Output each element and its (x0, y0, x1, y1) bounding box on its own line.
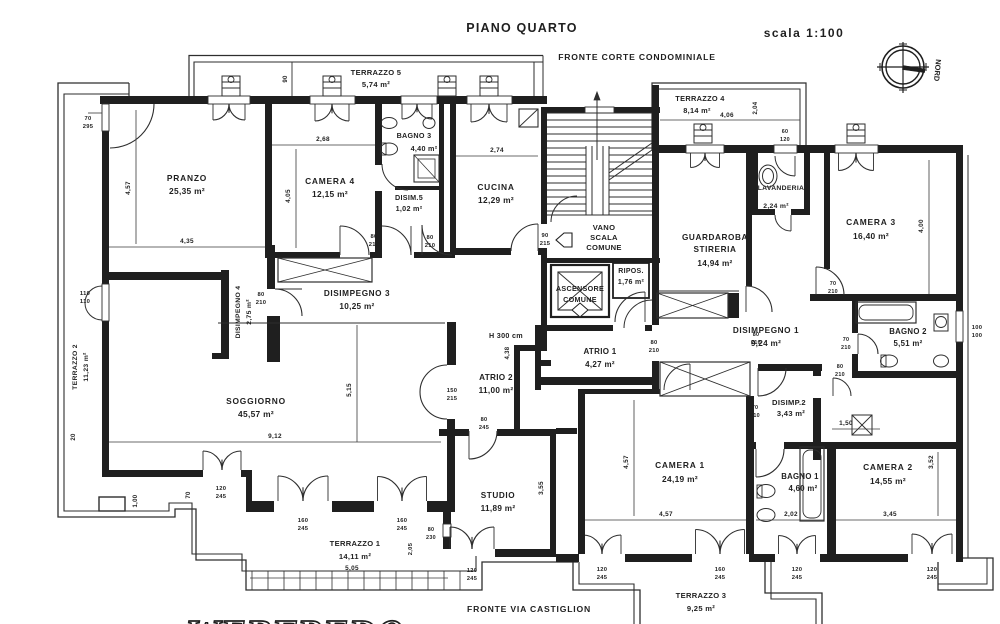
svg-text:5,15: 5,15 (346, 383, 353, 397)
svg-text:ATRIO 1: ATRIO 1 (583, 347, 616, 356)
svg-text:70: 70 (186, 491, 192, 499)
svg-text:TERRAZZO 2: TERRAZZO 2 (72, 344, 79, 390)
svg-text:4,27 m²: 4,27 m² (585, 360, 615, 369)
svg-text:3,43 m²: 3,43 m² (777, 409, 805, 418)
svg-text:80: 80 (428, 527, 435, 533)
svg-text:12,29 m²: 12,29 m² (478, 195, 514, 205)
svg-text:GUARDAROBA: GUARDAROBA (682, 233, 748, 242)
svg-text:4,57: 4,57 (623, 455, 630, 469)
svg-text:60: 60 (782, 129, 789, 135)
svg-text:25,35 m²: 25,35 m² (169, 186, 205, 196)
svg-text:245: 245 (792, 575, 803, 581)
svg-text:160: 160 (715, 567, 726, 573)
svg-text:210: 210 (841, 345, 851, 351)
svg-text:VANO: VANO (593, 223, 616, 232)
svg-text:4,40 m²: 4,40 m² (411, 144, 438, 153)
svg-text:DISIMPEGNO 1: DISIMPEGNO 1 (733, 326, 799, 335)
svg-text:SOGGIORNO: SOGGIORNO (226, 396, 286, 406)
svg-text:2,24 m²: 2,24 m² (763, 203, 789, 210)
svg-text:WEBFREDO: WEBFREDO (186, 611, 404, 624)
svg-text:9,24 m²: 9,24 m² (751, 339, 781, 348)
svg-text:215: 215 (540, 241, 551, 247)
svg-text:120: 120 (927, 567, 938, 573)
svg-text:24,19 m²: 24,19 m² (662, 474, 698, 484)
svg-text:4,57: 4,57 (125, 181, 132, 195)
svg-text:14,11 m²: 14,11 m² (339, 552, 372, 561)
svg-text:4,57: 4,57 (659, 511, 673, 518)
svg-text:1,76 m²: 1,76 m² (618, 279, 645, 286)
svg-text:TERRAZZO 3: TERRAZZO 3 (676, 591, 727, 600)
svg-text:2,74: 2,74 (490, 147, 504, 154)
svg-text:2,04: 2,04 (753, 101, 759, 114)
svg-text:12,15 m²: 12,15 m² (312, 189, 348, 199)
svg-text:4,05: 4,05 (285, 189, 292, 203)
svg-text:FRONTE VIA CASTIGLION: FRONTE VIA CASTIGLION (467, 604, 591, 614)
svg-text:2,75 m²: 2,75 m² (246, 299, 253, 325)
svg-text:245: 245 (597, 575, 608, 581)
svg-text:ASCENSORE: ASCENSORE (556, 284, 604, 293)
svg-text:4,06: 4,06 (720, 112, 734, 119)
svg-text:H 300 cm: H 300 cm (489, 331, 523, 340)
svg-text:CUCINA: CUCINA (477, 182, 514, 192)
svg-text:120: 120 (597, 567, 608, 573)
svg-text:14,94 m²: 14,94 m² (697, 259, 732, 268)
svg-text:COMUNE: COMUNE (586, 243, 622, 252)
svg-text:11,89 m²: 11,89 m² (481, 504, 516, 513)
svg-text:245: 245 (479, 425, 489, 431)
svg-text:9,25 m²: 9,25 m² (687, 604, 715, 613)
svg-text:70: 70 (843, 337, 850, 343)
svg-text:230: 230 (426, 535, 436, 541)
svg-text:14,55 m²: 14,55 m² (870, 476, 906, 486)
svg-text:245: 245 (298, 526, 309, 532)
svg-text:90: 90 (283, 75, 289, 83)
svg-text:160: 160 (397, 518, 408, 524)
svg-text:210: 210 (369, 242, 380, 248)
svg-text:120: 120 (780, 137, 790, 143)
svg-text:TERRAZZO 5: TERRAZZO 5 (351, 68, 402, 77)
svg-text:2,05: 2,05 (408, 542, 414, 555)
svg-text:PRANZO: PRANZO (167, 173, 207, 183)
svg-text:210: 210 (425, 243, 436, 249)
svg-text:245: 245 (397, 526, 408, 532)
svg-text:STIRERIA: STIRERIA (693, 245, 736, 254)
svg-text:16,40 m²: 16,40 m² (853, 231, 889, 241)
svg-text:150: 150 (447, 388, 458, 394)
svg-text:110: 110 (80, 291, 90, 297)
svg-text:2,02: 2,02 (784, 511, 798, 518)
svg-text:DISIM.5: DISIM.5 (395, 193, 423, 202)
svg-text:STUDIO: STUDIO (481, 491, 516, 500)
svg-text:DISIMPEGNO 4: DISIMPEGNO 4 (235, 286, 242, 339)
svg-text:CAMERA 2: CAMERA 2 (863, 462, 913, 472)
svg-text:160: 160 (298, 518, 309, 524)
svg-text:210: 210 (649, 348, 660, 354)
svg-text:scala 1:100: scala 1:100 (764, 26, 845, 40)
svg-text:FRONTE CORTE CONDOMINIALE: FRONTE CORTE CONDOMINIALE (558, 52, 716, 62)
svg-text:70: 70 (752, 405, 759, 411)
svg-text:CAMERA 4: CAMERA 4 (305, 176, 355, 186)
svg-text:4,38: 4,38 (505, 346, 511, 359)
svg-text:TERRAZZO 1: TERRAZZO 1 (330, 539, 381, 548)
svg-text:120: 120 (216, 486, 227, 492)
svg-text:5,74 m²: 5,74 m² (362, 80, 390, 89)
svg-text:120: 120 (792, 567, 803, 573)
svg-text:295: 295 (83, 124, 94, 130)
svg-text:1,00: 1,00 (133, 494, 139, 507)
svg-text:3,52: 3,52 (928, 455, 935, 469)
svg-text:245: 245 (927, 575, 938, 581)
svg-text:45,57 m²: 45,57 m² (238, 409, 274, 419)
svg-text:SCALA: SCALA (590, 233, 618, 242)
svg-text:210: 210 (835, 372, 845, 378)
svg-text:11,23 m²: 11,23 m² (83, 352, 90, 382)
svg-text:4,00: 4,00 (918, 219, 925, 233)
svg-text:3,55: 3,55 (538, 481, 545, 495)
svg-text:1,02 m²: 1,02 m² (396, 204, 423, 213)
svg-text:9,12: 9,12 (268, 433, 282, 440)
svg-text:80: 80 (370, 234, 377, 240)
svg-text:1,50: 1,50 (839, 420, 853, 427)
svg-text:5,05: 5,05 (345, 565, 359, 572)
svg-text:245: 245 (715, 575, 726, 581)
svg-text:100: 100 (972, 325, 983, 331)
svg-text:210: 210 (828, 289, 838, 295)
svg-text:80: 80 (481, 417, 488, 423)
svg-text:3,45: 3,45 (883, 511, 897, 518)
svg-text:TERRAZZO 4: TERRAZZO 4 (675, 94, 725, 103)
svg-text:100: 100 (972, 333, 983, 339)
svg-text:11,00 m²: 11,00 m² (479, 386, 514, 395)
svg-text:90: 90 (541, 233, 548, 239)
svg-text:ATRIO 2: ATRIO 2 (479, 373, 513, 382)
svg-text:110: 110 (80, 299, 90, 305)
svg-text:210: 210 (750, 413, 760, 419)
svg-text:20: 20 (71, 433, 77, 441)
svg-text:210: 210 (256, 300, 267, 306)
svg-text:DISIMPEGNO 3: DISIMPEGNO 3 (324, 289, 390, 298)
svg-text:120: 120 (467, 568, 477, 574)
svg-text:70: 70 (830, 281, 837, 287)
svg-text:BAGNO 2: BAGNO 2 (889, 327, 927, 336)
svg-text:245: 245 (467, 576, 477, 582)
svg-text:245: 245 (216, 494, 227, 500)
svg-text:PIANO QUARTO: PIANO QUARTO (466, 21, 577, 35)
svg-text:2,68: 2,68 (316, 136, 330, 143)
svg-text:DISIMP.2: DISIMP.2 (772, 398, 806, 407)
svg-text:CAMERA 1: CAMERA 1 (655, 460, 705, 470)
svg-text:8,14 m²: 8,14 m² (683, 106, 711, 115)
svg-text:5,51 m²: 5,51 m² (894, 339, 923, 348)
svg-text:4,35: 4,35 (180, 238, 194, 245)
svg-text:80: 80 (650, 340, 657, 346)
svg-text:80: 80 (837, 364, 844, 370)
svg-text:80: 80 (257, 292, 264, 298)
svg-text:CAMERA 3: CAMERA 3 (846, 217, 896, 227)
svg-text:10,25 m²: 10,25 m² (339, 302, 374, 311)
svg-text:215: 215 (447, 396, 458, 402)
svg-text:80: 80 (426, 235, 433, 241)
svg-text:RIPOS.: RIPOS. (618, 268, 644, 275)
svg-text:BAGNO 3: BAGNO 3 (397, 131, 432, 140)
svg-text:70: 70 (84, 116, 91, 122)
